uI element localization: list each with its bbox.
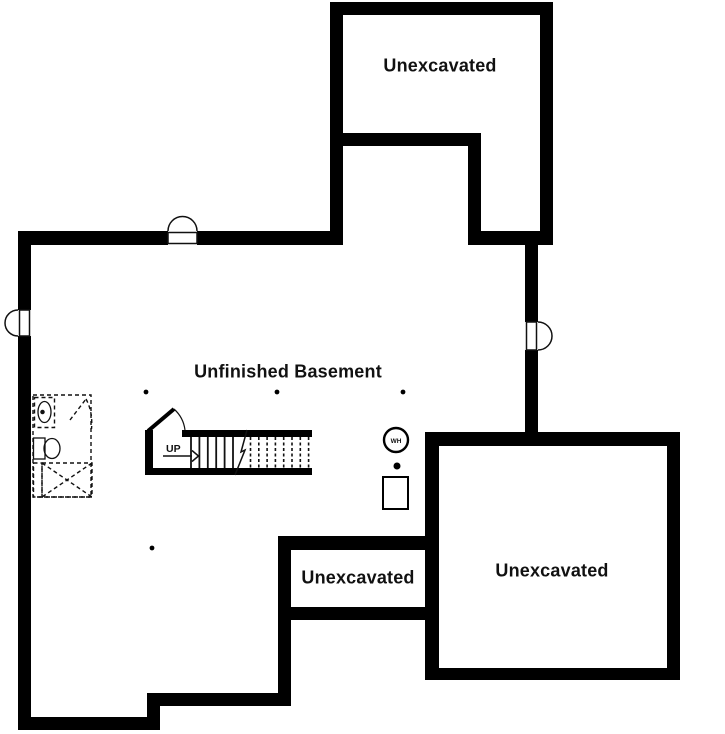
door-swing-icon — [174, 409, 185, 430]
wall-east-lower — [525, 350, 538, 432]
wall-top-room-east — [540, 2, 553, 245]
stair-run: UP — [145, 409, 312, 475]
wall-top-room-west — [330, 2, 343, 245]
wall-south-left — [18, 717, 160, 730]
stair-treads-dashed — [251, 437, 309, 468]
window-well-icon — [168, 217, 197, 232]
wall-west-upper — [18, 231, 31, 310]
sink-drain-dot — [41, 410, 44, 413]
wall-top-room-south — [330, 133, 481, 146]
support-post-dot — [401, 390, 406, 395]
wall-north-left — [18, 231, 168, 245]
basement-floor-plan: UP — [0, 0, 725, 734]
furnace-symbol — [383, 477, 408, 509]
window-frame — [20, 310, 30, 336]
stairs-up-label: UP — [166, 443, 181, 455]
floor-drain-dot — [394, 463, 401, 470]
wall-middle-room-west — [278, 536, 291, 706]
wall-bottom-right-room-south — [425, 668, 680, 680]
wall-middle-room-north — [278, 536, 439, 550]
wall-top-room-north — [330, 2, 553, 15]
support-post-dot — [275, 390, 280, 395]
wall-west-lower — [18, 336, 31, 730]
wall-northeast — [468, 231, 553, 245]
wall-bottom-right-room-east — [667, 432, 680, 680]
mechanical-equipment: WH — [383, 428, 408, 509]
future-bathroom-rough-in — [33, 395, 92, 497]
stair-wall-left — [145, 430, 153, 475]
wall-south-middle — [147, 693, 291, 706]
bathroom-door-leaf — [70, 399, 86, 420]
room-label-unexcavated-middle: Unexcavated — [301, 568, 414, 589]
door-leaf — [148, 409, 174, 431]
window-frame — [168, 233, 197, 244]
stair-rail-bottom — [145, 468, 312, 475]
room-label-unfinished-basement: Unfinished Basement — [194, 362, 382, 383]
water-heater-label: WH — [391, 438, 402, 445]
wall-bottom-right-room-west — [425, 432, 439, 680]
wall-bottom-right-room-north — [425, 432, 680, 446]
wall-middle-room-south — [278, 607, 439, 620]
stair-treads-solid — [191, 437, 233, 468]
window-well-icon — [538, 322, 552, 350]
room-label-unexcavated-top: Unexcavated — [383, 56, 496, 77]
toilet-tank-icon — [34, 438, 46, 459]
support-post-dot — [150, 546, 155, 551]
wall-north-right — [197, 231, 343, 245]
plumbing-chase-outline — [34, 463, 43, 497]
wall-top-room-notch-west — [468, 133, 481, 245]
room-label-unexcavated-bottom-right: Unexcavated — [495, 561, 608, 582]
window-frame — [527, 322, 537, 350]
toilet-bowl-icon — [44, 439, 60, 459]
wall-east-upper — [525, 245, 538, 322]
support-post-dot — [144, 390, 149, 395]
window-well-icon — [5, 310, 18, 336]
